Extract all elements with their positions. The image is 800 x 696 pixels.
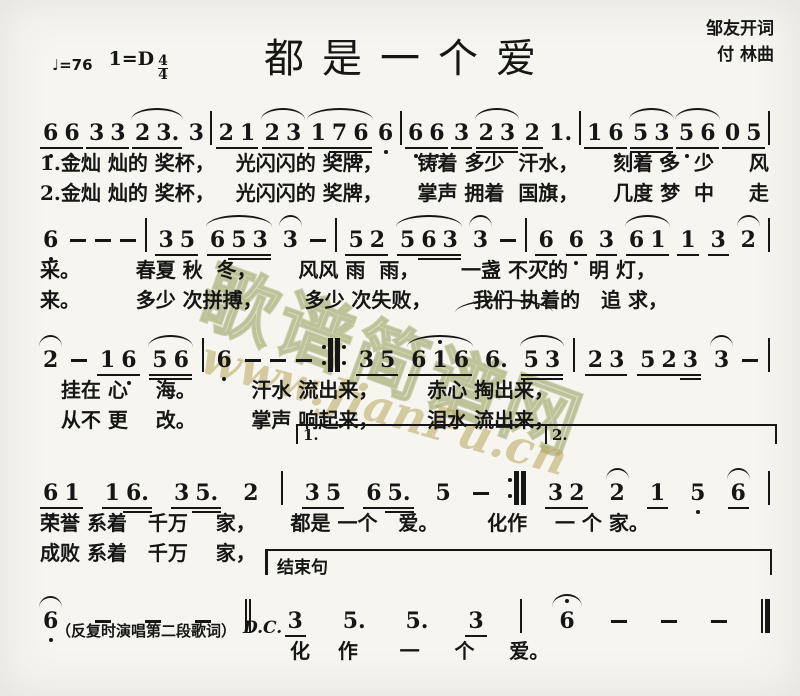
note: 3: [542, 348, 563, 373]
note: 1: [677, 228, 698, 253]
low-octave-dot: [544, 261, 548, 265]
note: 6: [728, 481, 749, 506]
note-group: 35.: [171, 481, 221, 506]
note: 5: [637, 348, 658, 373]
note: 5: [743, 121, 764, 146]
duration-dash: [296, 359, 312, 362]
note: 2: [40, 348, 61, 373]
note: 6: [61, 121, 82, 146]
note: 2: [585, 348, 606, 373]
note: 6: [363, 481, 384, 506]
notation-row: 635653352563366361132: [40, 203, 770, 253]
low-octave-dot: [338, 158, 342, 162]
note: 5.: [403, 609, 432, 634]
barline-single: [202, 337, 204, 373]
note: 3: [285, 609, 306, 634]
note-group: 53: [630, 121, 673, 146]
coda-bracket: 结束句: [265, 549, 772, 575]
duration-dash: [473, 492, 489, 495]
barline-single: [768, 470, 770, 506]
note: 6: [118, 348, 139, 373]
low-octave-dot: [414, 154, 418, 158]
note: 2: [262, 121, 283, 146]
note-group: 61: [626, 228, 669, 253]
note: 5: [687, 481, 708, 506]
note: 6: [213, 348, 234, 373]
barline-final: [761, 598, 770, 634]
note: 6: [40, 481, 61, 506]
note: 5: [228, 228, 249, 253]
note: 6: [171, 348, 192, 373]
note: 3: [302, 481, 323, 506]
note-group: 65.: [363, 481, 413, 506]
note: 3: [465, 609, 486, 634]
note: 5: [323, 481, 344, 506]
sheet-music-page: 歌谱简谱网 www.JianPu.cn ♩=76 1=D44 都是一个爱 邹友开…: [0, 0, 800, 696]
note: 6: [207, 228, 228, 253]
note-group: 32: [545, 481, 588, 506]
note-group: 05: [722, 121, 765, 146]
note: 5: [521, 348, 542, 373]
note-group: 16: [97, 348, 140, 373]
note: 6: [556, 609, 577, 634]
duration-dash: [611, 620, 627, 623]
note: 6.: [482, 348, 511, 373]
note-group: 52: [345, 228, 388, 253]
barline-single: [768, 110, 770, 146]
note: 3: [155, 228, 176, 253]
low-octave-dot: [660, 158, 664, 162]
note: 3: [680, 348, 701, 373]
note: 3: [356, 348, 377, 373]
notation-row: 663323.3212317666632321.16535605: [40, 96, 770, 146]
note: 5.: [340, 609, 369, 634]
lyrics-line: 荣誉 系着 千万 家， 都是 一个 爱。 化作 一 个 家。: [40, 511, 770, 536]
note: 3: [171, 481, 192, 506]
low-octave-dot: [359, 158, 363, 162]
barline-repeat-end: [508, 470, 526, 506]
barline-single: [335, 217, 337, 253]
note: 2: [607, 481, 628, 506]
note: 1: [584, 121, 605, 146]
note-group: 56: [149, 348, 192, 373]
note: 6: [350, 121, 371, 146]
note: 1: [97, 348, 118, 373]
barline-single: [400, 110, 402, 146]
note: 3: [606, 348, 627, 373]
notation-row: 216566356166.53235233: [40, 323, 770, 373]
note-group: 56: [676, 121, 719, 146]
duration-dash: [120, 239, 136, 242]
note: 6: [605, 121, 626, 146]
duration-dash: [500, 239, 516, 242]
lyrics-line: 1.金灿 灿的 奖杯， 光闪闪的 奖牌， 铸着 多少 汗水， 刻着 多 少 风: [40, 151, 770, 176]
low-octave-dot: [222, 377, 226, 381]
note: 6: [405, 121, 426, 146]
note: 5: [433, 481, 454, 506]
system-3: 216566356166.53235233 挂在 心 海。 汗水 流出来， 赤心…: [40, 323, 770, 433]
note-group: 53: [521, 348, 564, 373]
note-group: 616: [408, 348, 472, 373]
low-octave-dot: [614, 154, 618, 158]
note: 1.: [546, 121, 575, 146]
first-ending-bracket: 1.: [296, 424, 547, 444]
note-group: 35: [155, 228, 198, 253]
note-group: 66: [405, 121, 448, 146]
note: 2: [566, 481, 587, 506]
note: 0: [722, 121, 743, 146]
barline-single: [210, 110, 212, 146]
note: 5: [149, 348, 170, 373]
song-title: 都是一个爱: [0, 26, 800, 84]
note: 6: [451, 348, 472, 373]
note: 2: [522, 121, 543, 146]
note: 3: [596, 228, 617, 253]
low-octave-dot: [49, 257, 53, 261]
note: 6: [408, 348, 429, 373]
duration-dash: [245, 359, 261, 362]
low-octave-dot: [49, 154, 53, 158]
note: 3: [470, 228, 491, 253]
note-group: 563: [397, 228, 461, 253]
duration-dash: [270, 359, 286, 362]
note: 2: [240, 481, 261, 506]
low-octave-dot: [49, 514, 53, 518]
lyrics-line: 挂在 心 海。 汗水 流出来， 赤心 掏出来，: [40, 378, 770, 403]
note: 6: [40, 228, 61, 253]
low-octave-dot: [574, 261, 578, 265]
barline-single: [768, 217, 770, 253]
note: 5: [377, 348, 398, 373]
second-ending-bracket: 2.: [545, 424, 777, 444]
note: 6: [426, 121, 447, 146]
note: 6: [418, 228, 439, 253]
duration-dash: [70, 239, 86, 242]
note: 3: [651, 121, 672, 146]
note-group: 16.: [102, 481, 152, 506]
note: 5: [345, 228, 366, 253]
note: 1: [237, 121, 258, 146]
barline-single: [579, 110, 581, 146]
low-octave-dot: [706, 154, 710, 158]
note: 3: [250, 228, 271, 253]
note: 2: [216, 121, 237, 146]
note-group: 23.: [132, 121, 182, 146]
note-group: 23: [476, 121, 519, 146]
note: 2: [738, 228, 759, 253]
note: 3: [283, 121, 304, 146]
note: 2: [658, 348, 679, 373]
da-capo-marking: D.C.: [243, 618, 282, 638]
note: 1: [429, 348, 450, 373]
note: 5: [676, 121, 697, 146]
lyricist-credit: 邹友开词: [706, 16, 774, 42]
note-group: 523: [637, 348, 701, 373]
note: 3: [107, 121, 128, 146]
note: 6: [40, 121, 61, 146]
barline-single: [573, 337, 575, 373]
fermata-dot: [565, 599, 569, 603]
note: 6.: [123, 481, 152, 506]
barline-repeat-both: [322, 337, 346, 373]
note: 3: [711, 348, 732, 373]
low-octave-dot: [49, 638, 53, 642]
low-octave-dot: [752, 154, 756, 158]
low-octave-dot: [435, 154, 439, 158]
lyrics-line: 采。 春夏 秋 冬， 风风 雨 雨， 一盏 不灭的 明 灯，: [40, 258, 770, 283]
lyrics-line: 化 作 一 个 爱。: [40, 639, 770, 664]
credits: 邹友开词 付 林曲: [706, 16, 774, 68]
note: 5: [397, 228, 418, 253]
note: 2: [476, 121, 497, 146]
note: 5: [630, 121, 651, 146]
note-group: 653: [207, 228, 271, 253]
barline-single: [520, 598, 522, 634]
note: 3: [497, 121, 518, 146]
composer-credit: 付 林曲: [706, 42, 774, 68]
note: 3.: [153, 121, 182, 146]
system-1: 663323.3212317666632321.165356051.金灿 灿的 …: [40, 96, 770, 206]
duration-dash: [71, 359, 87, 362]
note: 2: [367, 228, 388, 253]
note-group: 66: [40, 121, 83, 146]
note: 6: [375, 121, 396, 146]
note-group: 21: [216, 121, 259, 146]
duration-dash: [742, 359, 758, 362]
note: 1: [647, 481, 668, 506]
note: 7: [329, 121, 350, 146]
duration-dash: [661, 620, 677, 623]
note: 5: [177, 228, 198, 253]
low-octave-dot: [70, 154, 74, 158]
note: 1: [102, 481, 123, 506]
coda-label: 结束句: [277, 553, 328, 578]
barline-single: [281, 470, 283, 506]
note: 3: [451, 121, 472, 146]
note: 1: [308, 121, 329, 146]
high-octave-dot: [438, 340, 442, 344]
duration-dash: [711, 620, 727, 623]
repeat-instruction: （反复时演唱第二段歌词）: [56, 620, 236, 641]
system-2: 635653352563366361132采。 春夏 秋 冬， 风风 雨 雨， …: [40, 203, 770, 313]
barline-single: [145, 217, 147, 253]
note: 2: [132, 121, 153, 146]
note: 3: [280, 228, 301, 253]
notation-row: 6116.35.23565.5322156: [40, 456, 770, 506]
note: 6: [566, 228, 587, 253]
barline-single: [768, 337, 770, 373]
low-octave-dot: [639, 158, 643, 162]
note-group: 61: [40, 481, 83, 506]
note: 6: [697, 121, 718, 146]
note: 1: [647, 228, 668, 253]
note: 6: [626, 228, 647, 253]
duration-dash: [95, 239, 111, 242]
note: 3: [440, 228, 461, 253]
note: 3: [708, 228, 729, 253]
low-octave-dot: [685, 154, 689, 158]
lyrics-line: 来。 多少 次拼搏， 多少 次失败， 我们 执着的 追 求，: [40, 288, 770, 313]
note: 3: [545, 481, 566, 506]
note: 3: [86, 121, 107, 146]
note-group: 33: [86, 121, 129, 146]
note: 3: [186, 121, 207, 146]
note: 5.: [385, 481, 414, 506]
note-group: 35: [356, 348, 399, 373]
note: 6: [535, 228, 556, 253]
note-group: 23: [262, 121, 305, 146]
note-group: 16: [584, 121, 627, 146]
note-group: 35: [302, 481, 345, 506]
note-group: 176: [308, 121, 372, 146]
duration-dash: [310, 239, 326, 242]
note: 1: [61, 481, 82, 506]
low-octave-dot: [127, 381, 131, 385]
barline-single: [525, 217, 527, 253]
note: 5.: [192, 481, 221, 506]
low-octave-dot: [696, 510, 700, 514]
low-octave-dot: [384, 150, 388, 154]
note-group: 23: [585, 348, 628, 373]
